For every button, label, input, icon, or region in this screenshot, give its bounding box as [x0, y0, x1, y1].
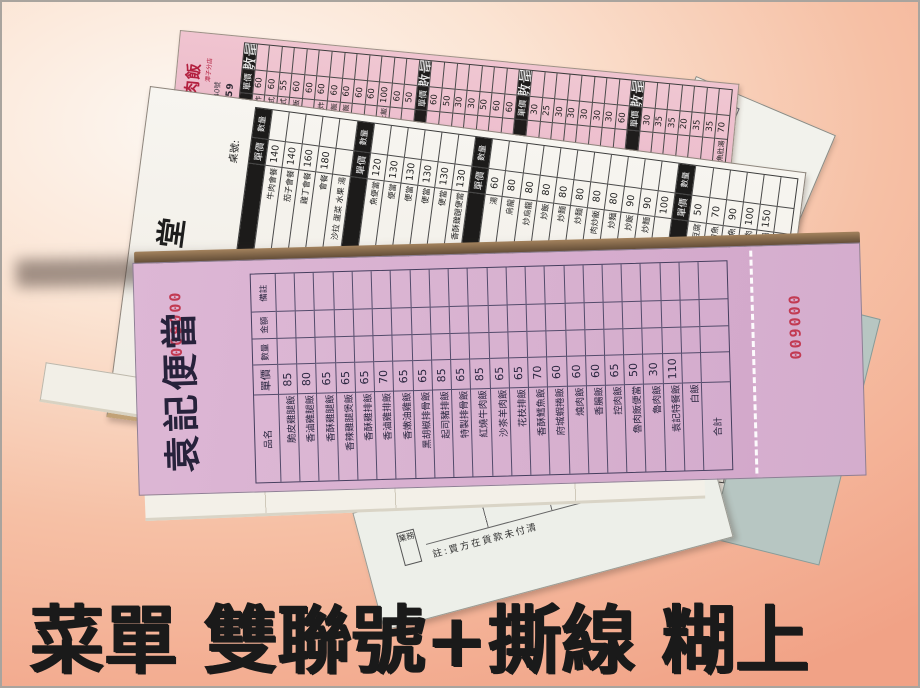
menu-item-price: 35	[690, 113, 704, 138]
menu-item-name: 紅燒牛肉飯	[475, 390, 490, 438]
menu-item-price: 100	[378, 82, 392, 107]
menu-item-price: 160	[303, 148, 316, 167]
menu-item-name: 燒肉飯	[567, 386, 588, 473]
form-cell	[506, 267, 525, 305]
menu-item-price: 90	[642, 196, 654, 209]
form-cell	[660, 263, 679, 301]
menu-item-price: 140	[286, 146, 299, 165]
menu-item-name: 炒烏龍	[520, 201, 534, 226]
form-cell	[489, 332, 508, 358]
price-header: 單價	[674, 197, 690, 218]
form-cell	[777, 177, 797, 209]
menu-item-price: 110	[665, 358, 679, 379]
qty-header: 數量	[476, 144, 489, 161]
menu-item-price: 30	[592, 109, 603, 121]
form-cell	[603, 264, 622, 302]
form-cell	[333, 272, 352, 310]
menu-item-price: 65	[319, 371, 332, 385]
menu-item-name: 烏龍	[504, 198, 517, 215]
amount-header: 金額	[252, 312, 277, 340]
menu-item-name: 炒飯	[538, 203, 551, 220]
menu-item-price: 60	[254, 77, 265, 89]
menu-item-price: 35	[692, 119, 703, 131]
form-cell	[641, 263, 660, 301]
menu-item-name: 茄子會餐	[282, 169, 297, 202]
form-cell	[431, 334, 450, 360]
menu-item-price: 65	[493, 366, 506, 380]
menu-item-name: 便當	[386, 183, 399, 200]
form-cell	[277, 338, 296, 364]
menu-item-price: 50	[442, 95, 453, 107]
menu-item-price: 30	[579, 108, 590, 120]
menu-item-name: 香嫩油雞飯	[398, 392, 413, 440]
price-header: 單價	[240, 69, 254, 94]
form-cell	[468, 268, 487, 306]
front-pad-top-sheet: 009000 袁記便當 備註金額數量單價品名85脆皮雞腿飯80香滷雞腿飯65香酥…	[132, 243, 866, 496]
menu-item-price: 65	[317, 363, 336, 393]
qty-header: 數量	[259, 343, 271, 360]
form-cell	[526, 266, 545, 304]
menu-item-price: 30	[467, 97, 478, 109]
menu-item-price: 80	[608, 191, 620, 204]
menu-item-name: 便當	[403, 185, 416, 202]
menu-item-price: 60	[353, 80, 367, 105]
menu-item-name: 香滷雞腿飯	[298, 394, 319, 481]
front-pad-shop-name: 袁記便當	[140, 288, 216, 494]
menu-item-price: 130	[387, 159, 400, 178]
menu-item-price: 85	[473, 367, 486, 381]
note-header: 備註	[251, 274, 276, 313]
menu-item-name: 香腸飯	[591, 387, 606, 416]
menu-item-price: 30	[642, 114, 653, 126]
form-cell	[642, 301, 661, 328]
menu-item-price: 55	[278, 73, 292, 98]
form-cell	[451, 334, 470, 360]
menu-item-price: 70	[531, 365, 544, 379]
menu-item-price: 20	[679, 117, 690, 129]
menu-item-price: 35	[654, 115, 665, 127]
price-header: 單價	[415, 89, 429, 107]
menu-item-price: 65	[358, 370, 371, 384]
menu-item-price: 60	[329, 84, 340, 96]
menu-item-price: 50	[440, 88, 454, 113]
menu-item-price: 30	[465, 91, 479, 116]
menu-item-price: 60	[392, 90, 403, 102]
middle-pad-table-number-label: 桌號:	[220, 114, 246, 189]
menu-item-name: 紅燒牛肉飯	[471, 389, 492, 476]
form-cell	[391, 270, 410, 308]
menu-item-name: 香酥鱈魚飯	[533, 388, 548, 436]
form-cell	[583, 265, 602, 303]
form-cell	[700, 326, 729, 353]
menu-item-price: 85	[470, 359, 489, 389]
menu-item-price: 60	[328, 78, 342, 103]
form-cell	[469, 306, 488, 333]
form-cell	[276, 273, 295, 311]
menu-item-price: 60	[290, 74, 304, 99]
name-header: 品名	[254, 395, 280, 483]
menu-item-price: 65	[336, 363, 355, 393]
form-cell	[700, 299, 729, 327]
menu-item-price: 60	[253, 70, 267, 95]
qty-header: 數量	[679, 171, 692, 188]
menu-item-price: 70	[715, 115, 729, 140]
menu-item-price: 60	[317, 83, 328, 95]
menu-item-price: 60	[503, 94, 517, 119]
menu-item-name: 燒肉飯	[571, 387, 586, 416]
menu-item-price: 90	[625, 194, 637, 207]
name-header: 品名	[260, 429, 275, 448]
form-cell	[585, 330, 604, 356]
menu-item-price: 60	[615, 105, 629, 130]
menu-item-price: 80	[506, 178, 518, 191]
menu-item-name: 沙茶羊肉飯	[491, 388, 512, 475]
menu-item-price: 30	[529, 103, 540, 115]
menu-item-price: 35	[667, 116, 678, 128]
menu-item-name: 肉炒飯	[588, 210, 602, 235]
menu-item-name: 沙茶羊肉飯	[494, 389, 509, 437]
form-cell	[335, 337, 354, 363]
menu-item-name: 湯	[488, 196, 500, 205]
menu-item-price: 85	[278, 364, 297, 394]
form-cell	[429, 269, 448, 307]
price-header: 單價	[628, 106, 642, 131]
menu-item-price: 20	[678, 111, 692, 136]
form-cell	[507, 305, 526, 332]
total-column: 合計	[699, 261, 733, 470]
menu-item-name: 特製排骨飯	[456, 391, 471, 439]
price-header: 單價	[415, 86, 429, 111]
form-cell	[353, 271, 372, 309]
form-cell	[470, 333, 489, 359]
price-header: 單價	[253, 365, 278, 396]
form-cell	[508, 332, 527, 358]
menu-item-price: 30	[554, 105, 565, 117]
menu-item-price: 30	[565, 100, 579, 125]
front-order-pad: 009000 袁記便當 備註金額數量單價品名85脆皮雞腿飯80香滷雞腿飯65香酥…	[128, 231, 878, 552]
menu-item-name: 白飯	[683, 383, 704, 470]
menu-item-price: 65	[490, 358, 509, 388]
menu-item-name: 魯肉飯	[644, 384, 665, 471]
form-cell	[393, 335, 412, 361]
menu-item-price: 50	[624, 355, 643, 385]
total-label: 合計	[702, 382, 732, 470]
form-cell	[701, 352, 730, 383]
form-cell	[354, 309, 373, 336]
menu-item-price: 30	[567, 107, 578, 119]
menu-item-price: 55	[279, 79, 290, 91]
form-cell	[622, 264, 641, 302]
form-cell	[410, 270, 429, 308]
form-cell	[643, 328, 662, 354]
menu-item-name: 香酥鱈魚飯	[529, 387, 550, 474]
menu-item-price: 180	[320, 150, 333, 169]
form-cell	[315, 310, 334, 337]
menu-item-price: 85	[432, 360, 451, 390]
form-cell	[297, 338, 316, 364]
menu-item-price: 60	[492, 99, 503, 111]
menu-item-price: 140	[269, 144, 282, 163]
form-cell	[662, 328, 681, 354]
menu-item-name: 便當	[420, 187, 433, 204]
menu-item-price: 50	[478, 92, 492, 117]
menu-item-price: 110	[663, 354, 682, 384]
menu-item-price: 50	[404, 91, 415, 103]
menu-item-price: 30	[603, 104, 617, 129]
menu-item-name: 花枝排飯	[514, 389, 529, 427]
menu-item-price: 85	[281, 372, 294, 386]
menu-item-price: 30	[644, 354, 663, 384]
menu-item-price: 60	[390, 84, 404, 109]
form-cell	[296, 311, 315, 338]
form-cell	[564, 265, 583, 303]
form-cell	[334, 310, 353, 337]
form-cell	[545, 266, 564, 304]
form-cell	[373, 309, 392, 336]
menu-item-price: 60	[490, 93, 504, 118]
menu-item-name: 炒飯	[623, 214, 636, 231]
amount-header: 金額	[258, 317, 270, 334]
menu-item-name: 魯肉飯便當	[629, 386, 644, 434]
menu-item-price: 130	[421, 164, 434, 183]
menu-item-price: 65	[413, 361, 432, 391]
menu-item-price: 60	[504, 101, 515, 113]
menu-item-name: 香滷雞腿飯	[302, 395, 317, 443]
menu-item-price: 50	[627, 362, 640, 376]
menu-item-price: 60	[589, 363, 602, 377]
menu-item-name: 會餐	[318, 174, 331, 191]
menu-item-name: 炒麵	[606, 212, 619, 229]
menu-item-price: 65	[605, 355, 624, 385]
form-cell	[679, 262, 698, 300]
form-cell	[316, 337, 335, 363]
menu-item-price: 65	[355, 362, 374, 392]
menu-item-price: 35	[653, 109, 667, 134]
menu-item-price: 100	[379, 86, 391, 103]
front-pad-menu-table: 備註金額數量單價品名85脆皮雞腿飯80香滷雞腿飯65香酥雞腿飯65香辣雞腿煲飯6…	[250, 260, 734, 483]
menu-item-price: 70	[528, 357, 547, 387]
form-cell	[372, 271, 391, 309]
menu-item-name: 便當	[437, 190, 450, 207]
form-cell	[604, 302, 623, 329]
caption-text: 菜單 雙聯號+撕線 糊上	[30, 599, 810, 684]
price-header: 單價	[471, 170, 487, 191]
menu-item-name: 花枝排飯	[510, 388, 531, 475]
menu-item-price: 60	[428, 87, 442, 112]
menu-item-name: 控肉飯	[610, 386, 625, 415]
form-cell	[527, 304, 546, 331]
menu-item-price: 90	[727, 207, 739, 220]
menu-item-name: 香酥雞腿飯	[321, 394, 336, 442]
menu-item-name: 香辣雞腿煲飯	[341, 394, 357, 451]
menu-item-price: 50	[403, 85, 417, 110]
menu-item-name: 袁記特餐飯	[664, 384, 685, 471]
menu-item-price: 65	[509, 358, 528, 388]
menu-item-price: 70	[710, 205, 722, 218]
form-cell	[431, 307, 450, 334]
menu-item-name: 控肉飯	[606, 385, 627, 472]
menu-item-name: 香酥雞排飯	[360, 393, 375, 441]
menu-item-price: 60	[617, 111, 628, 123]
form-cell	[374, 336, 393, 362]
menu-item-price: 65	[339, 370, 352, 384]
form-cell	[566, 330, 585, 356]
form-cell	[623, 302, 642, 329]
menu-item-price: 100	[659, 195, 672, 214]
menu-item-price: 65	[394, 361, 413, 391]
price-header: 單價	[352, 154, 368, 175]
menu-item-name: 魯肉飯便當	[625, 385, 646, 472]
menu-item-price: 60	[315, 76, 329, 101]
menu-item-price: 60	[567, 356, 586, 386]
menu-item-price: 60	[354, 86, 365, 98]
form-cell	[295, 273, 314, 311]
form-cell	[718, 89, 732, 116]
menu-item-price: 130	[455, 168, 468, 187]
menu-item-name: 脆皮雞腿飯	[283, 395, 298, 443]
qty-header: 數量	[256, 115, 269, 132]
menu-item-price: 150	[760, 208, 773, 227]
menu-item-price: 30	[604, 110, 615, 122]
menu-item-name: 魯肉飯	[648, 385, 663, 414]
menu-item-price: 60	[265, 72, 279, 97]
menu-item-price: 80	[540, 182, 552, 195]
menu-item-price: 50	[693, 203, 705, 216]
menu-item-price: 60	[547, 357, 566, 387]
price-header: 單價	[257, 368, 274, 390]
menu-item-name: 黑胡椒排骨飯	[414, 391, 435, 478]
menu-item-price: 35	[704, 120, 715, 132]
menu-item-price: 30	[590, 103, 604, 128]
menu-item-price: 30	[528, 97, 542, 122]
menu-item-price: 85	[435, 368, 448, 382]
menu-item-price: 30	[646, 362, 659, 376]
menu-item-name: 府城蝦捲飯	[548, 387, 569, 474]
menu-item-price: 60	[342, 85, 353, 97]
price-header: 單價	[240, 72, 254, 90]
menu-item-name: 香腸飯	[587, 386, 608, 473]
menu-item-price: 60	[340, 79, 354, 104]
menu-item-price: 120	[370, 157, 383, 176]
price-header: 單價	[516, 99, 530, 117]
form-cell	[488, 305, 507, 332]
menu-item-price: 35	[703, 114, 717, 139]
menu-item-name: 脆皮雞腿飯	[279, 394, 300, 481]
menu-item-price: 80	[523, 180, 535, 193]
menu-item-name: 起司豬排飯	[433, 390, 454, 477]
form-cell	[354, 336, 373, 362]
form-cell	[624, 329, 643, 355]
menu-item-name: 特製排骨飯	[452, 389, 473, 476]
form-cell	[565, 303, 584, 330]
menu-item-price: 80	[557, 185, 569, 198]
menu-item-price: 30	[454, 96, 465, 108]
menu-item-price: 70	[717, 121, 728, 133]
menu-item-name: 香酥雞腿飯	[318, 393, 339, 480]
menu-item-price: 60	[586, 356, 605, 386]
price-header: 單價	[250, 141, 266, 162]
menu-item-price: 35	[665, 110, 679, 135]
menu-item-price: 65	[454, 367, 467, 381]
serial-number-stub: 009000	[782, 279, 809, 374]
menu-item-price: 100	[743, 206, 756, 225]
menu-item-price: 80	[574, 187, 586, 200]
menu-item-price: 30	[453, 90, 467, 115]
price-header: 單價	[628, 109, 642, 127]
menu-item-price: 60	[292, 80, 303, 92]
menu-item-price: 30	[553, 99, 567, 124]
menu-item-name: 雞丁會餐	[299, 172, 314, 205]
menu-item-price: 65	[512, 365, 525, 379]
menu-item-name: 袁記特餐飯	[667, 385, 682, 433]
form-cell	[411, 308, 430, 335]
qty-header: 數量	[252, 339, 277, 366]
menu-item-price: 80	[297, 364, 316, 394]
price-header: 單價	[515, 96, 529, 121]
menu-item-name: 炒麵	[572, 207, 585, 224]
form-cell	[450, 307, 469, 334]
form-cell	[546, 304, 565, 331]
form-cell	[699, 261, 728, 300]
menu-item-price: 65	[451, 360, 470, 390]
menu-item-price: 50	[479, 98, 490, 110]
menu-item-price	[774, 207, 793, 235]
form-cell	[487, 267, 506, 305]
menu-item-price: 60	[267, 78, 278, 90]
menu-item-price: 60	[489, 176, 501, 189]
form-cell	[412, 335, 431, 361]
menu-item-name: 炒麵	[640, 216, 653, 233]
form-cell	[449, 269, 468, 307]
form-cell	[584, 303, 603, 330]
menu-item-price: 25	[540, 98, 554, 123]
menu-item-name: 香辣雞腿煲飯	[337, 393, 358, 480]
total-label: 合計	[710, 416, 725, 435]
menu-item-name: 起司豬排飯	[437, 391, 452, 439]
menu-item-price: 30	[640, 108, 654, 133]
menu-item-price: 60	[429, 93, 440, 105]
menu-item-name: 白飯	[687, 384, 702, 403]
menu-item-price: 70	[374, 362, 393, 392]
form-cell	[604, 329, 623, 355]
menu-item-price: 25	[542, 104, 553, 116]
form-cell	[527, 331, 546, 357]
menu-item-price: 80	[591, 189, 603, 202]
menu-item-price: 60	[550, 364, 563, 378]
menu-item-name: 香酥雞排飯	[356, 392, 377, 479]
form-cell	[661, 301, 680, 328]
menu-item-name: 香滷雞排飯	[375, 392, 396, 479]
menu-item-price: 60	[304, 81, 315, 93]
menu-item-price: 60	[569, 364, 582, 378]
form-cell	[681, 327, 700, 353]
form-cell	[392, 308, 411, 335]
menu-item-name: 牛肉會餐	[265, 167, 280, 200]
menu-item-name: 炒麵	[555, 205, 568, 222]
menu-item-price: 60	[367, 87, 378, 99]
form-cell	[680, 300, 699, 327]
menu-item-price: 60	[365, 81, 379, 106]
menu-item-price: 65	[608, 363, 621, 377]
menu-item-price: 30	[578, 102, 592, 127]
photo-stage: 價 金額 台灣火雞肉飯 潭子分店 市潭子區圓環一路340號 04-2531265…	[0, 0, 920, 688]
menu-item-price: 65	[416, 368, 429, 382]
menu-item-price: 130	[438, 166, 451, 185]
qty-header: 數量	[357, 128, 370, 145]
menu-item-price: 60	[303, 75, 317, 100]
menu-item-name: 府城蝦捲飯	[552, 388, 567, 436]
menu-item-price: 65	[396, 369, 409, 383]
